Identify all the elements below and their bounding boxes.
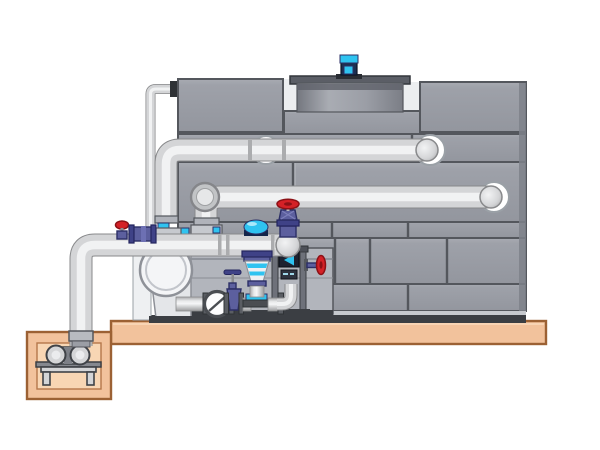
tower-panel-top-right <box>420 82 526 132</box>
tower-recess-gap-right <box>403 82 420 112</box>
riser-gasket-left <box>181 228 189 234</box>
check-fitting-band <box>141 226 146 242</box>
upper-riser-flange-plate <box>155 216 178 223</box>
cone-band-lower <box>249 272 265 276</box>
concrete-platform <box>111 321 546 344</box>
cone-junction-flange <box>243 300 270 307</box>
riser-gasket-right <box>213 227 220 233</box>
makeup-pipe-wall-flange <box>170 81 177 97</box>
sump-pipe-reducer <box>72 341 90 347</box>
cooling-tower-illustration <box>0 0 600 450</box>
header-seam-a <box>218 234 222 256</box>
illustration-page <box>0 0 600 450</box>
gate-valve-bonnet <box>229 283 236 289</box>
check-fitting-flange-left <box>129 225 134 243</box>
fan-motor-cap <box>340 55 358 63</box>
cone-bottom-ring <box>248 281 266 286</box>
top-valve-hub <box>284 202 292 206</box>
cone-top-flange <box>242 251 272 257</box>
header-check-fitting <box>129 225 156 243</box>
tower-right-face <box>519 83 526 311</box>
mini-valve-handwheel <box>116 221 129 229</box>
upper-pipe-elbow-dome <box>416 139 438 161</box>
pump-end-right-hub <box>76 351 85 360</box>
blue-dome-cap <box>244 220 268 236</box>
tower-recess-band <box>284 111 420 134</box>
upper-pipe-seam-b <box>282 140 286 161</box>
plate-tick-b <box>290 273 294 275</box>
pump-stand-leg-left <box>43 372 50 385</box>
manifold-stub <box>176 297 206 311</box>
pump-foot <box>149 316 195 323</box>
fan-shroud-inner-shadow <box>298 84 402 90</box>
upper-pipe-seam-a <box>248 140 252 161</box>
tower-panel-top-left <box>178 79 283 132</box>
middle-pipe-elbow-face-inner <box>197 189 214 206</box>
header-seam-b <box>226 234 230 256</box>
check-fitting-flange-right <box>151 225 156 243</box>
pump-stand-leg-right <box>87 372 94 385</box>
plate-tick-a <box>283 273 288 275</box>
side-valve-hub <box>319 261 322 269</box>
sump-pipe-coupling <box>69 331 93 341</box>
fan-motor-window <box>344 66 353 74</box>
middle-riser-flange-upper <box>194 218 219 225</box>
gate-valve-stem <box>232 274 235 283</box>
mini-valve-body <box>117 231 127 239</box>
top-valve-flange <box>277 220 299 226</box>
top-gate-valve <box>277 199 299 237</box>
dome-cap-highlight <box>247 222 257 226</box>
pump-end-left-hub <box>52 351 61 360</box>
gate-valve-tee-handle <box>224 270 241 275</box>
top-valve-body <box>280 226 296 237</box>
gate-valve-flange-left <box>224 293 229 314</box>
middle-pipe-elbow-dome <box>480 186 502 208</box>
cone-band-upper <box>247 264 268 269</box>
dome-cap <box>244 220 268 234</box>
cone-drop-pipe <box>250 286 264 297</box>
